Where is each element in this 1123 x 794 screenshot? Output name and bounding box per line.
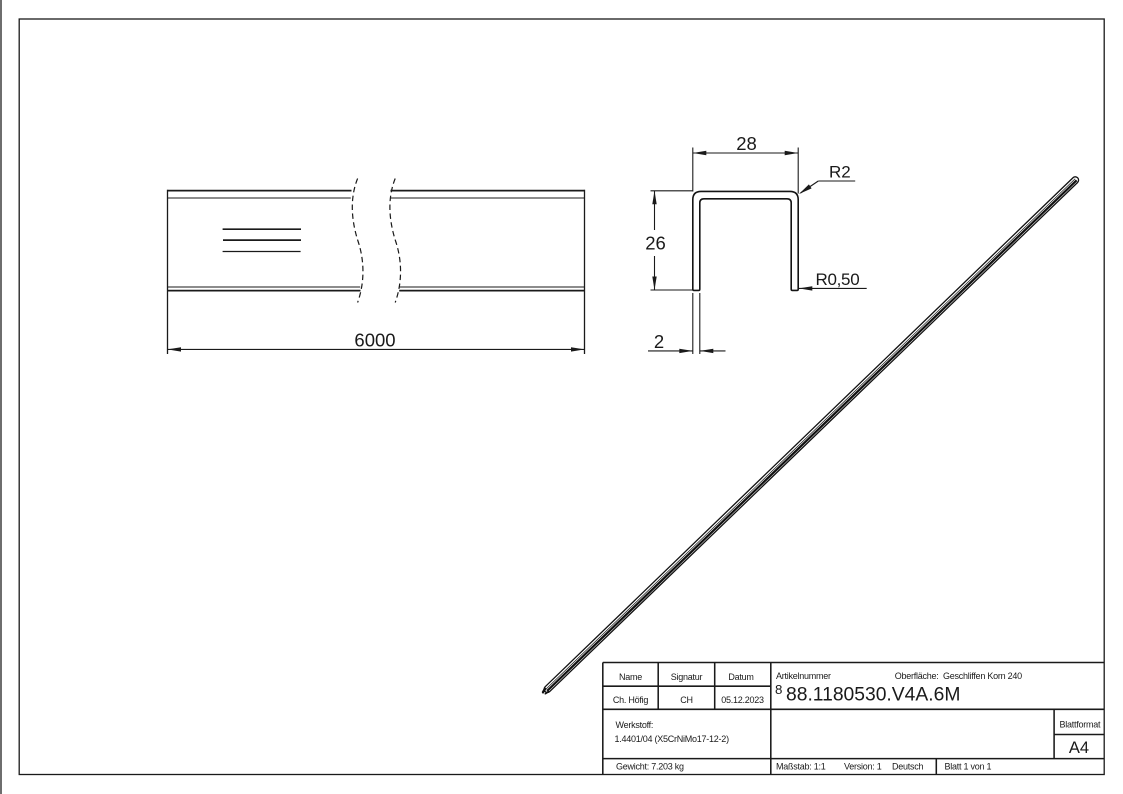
svg-text:R2: R2 xyxy=(829,162,851,181)
svg-text:88.1180530.V4A.6M: 88.1180530.V4A.6M xyxy=(786,685,960,706)
svg-text:Artikelnummer: Artikelnummer xyxy=(776,671,831,681)
svg-text:28: 28 xyxy=(736,133,757,154)
svg-text:05.12.2023: 05.12.2023 xyxy=(721,695,764,705)
svg-text:A4: A4 xyxy=(1069,739,1089,757)
svg-text:1.4401/04 (X5CrNiMo17-12-2): 1.4401/04 (X5CrNiMo17-12-2) xyxy=(615,734,730,744)
svg-text:Datum: Datum xyxy=(728,672,753,682)
svg-text:2: 2 xyxy=(654,331,664,352)
svg-text:Oberfläche: Geschliffen Korn: Oberfläche: Geschliffen Korn 240 xyxy=(895,671,1022,681)
svg-text:Version: 1: Version: 1 xyxy=(844,761,882,771)
svg-text:26: 26 xyxy=(645,233,666,254)
svg-text:Werkstoff:: Werkstoff: xyxy=(616,720,654,730)
svg-text:CH: CH xyxy=(680,695,693,705)
svg-text:Blatt 1 von 1: Blatt 1 von 1 xyxy=(945,761,992,771)
svg-text:Signatur: Signatur xyxy=(671,672,703,682)
svg-text:Blattformat: Blattformat xyxy=(1060,719,1102,729)
svg-text:R0,50: R0,50 xyxy=(816,270,860,289)
svg-text:Name: Name xyxy=(619,672,642,682)
svg-text:Gewicht: 7.203 kg: Gewicht: 7.203 kg xyxy=(616,761,684,771)
svg-text:Maßstab: 1:1: Maßstab: 1:1 xyxy=(776,761,826,771)
svg-text:Ch. Höfig: Ch. Höfig xyxy=(613,695,649,705)
svg-text:8: 8 xyxy=(775,682,782,697)
svg-text:6000: 6000 xyxy=(354,329,395,350)
svg-text:Deutsch: Deutsch xyxy=(892,761,924,771)
